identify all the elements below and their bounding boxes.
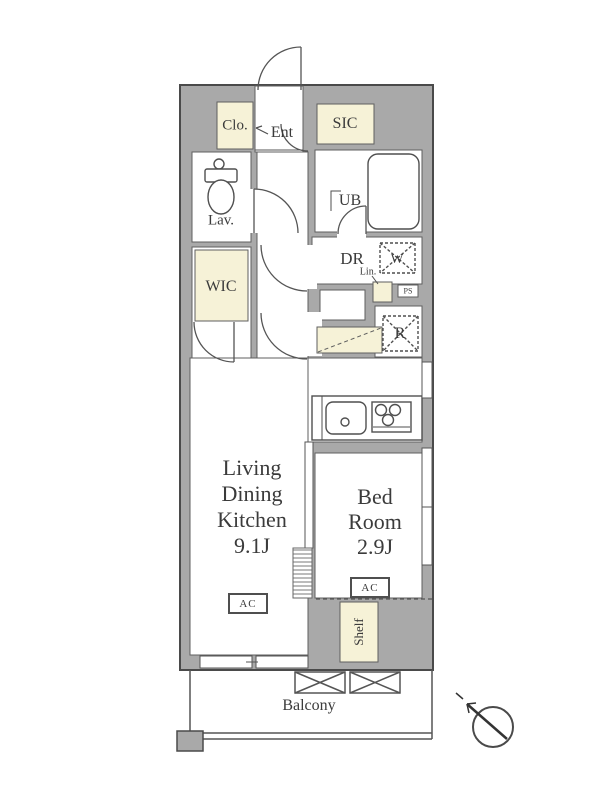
refrigerator-label: R: [395, 325, 406, 343]
pipe-space-label: PS: [404, 287, 413, 296]
bedroom-ac-badge: AC: [350, 577, 390, 598]
linen-box: [373, 282, 392, 302]
kitchen-counter: [312, 396, 422, 440]
closet-label: Clo.: [222, 118, 247, 135]
ldk-label-size: 9.1J: [217, 533, 287, 559]
ldk-balcony-window-left: [200, 656, 252, 668]
ldk-ac-badge: AC: [228, 593, 268, 614]
floorplan-page: Clo. Ent SIC Lav. UB DR Lin. W PS WIC R …: [0, 0, 600, 800]
unit-bath-label: UB: [339, 192, 361, 210]
bedroom-label-line1: Bed: [348, 484, 402, 509]
ldk-balcony-window-right: [256, 656, 308, 668]
thin-partition-wall: [305, 442, 313, 548]
balcony-label: Balcony: [282, 697, 335, 715]
accordion-door-hatch: [293, 548, 312, 598]
floorplan-drawing: [0, 0, 600, 800]
compass-north-icon: [456, 693, 513, 747]
lavatory-label: Lav.: [208, 213, 234, 230]
stove-icon: [372, 402, 411, 432]
bathtub-icon: [368, 154, 419, 229]
ldk-label: Living Dining Kitchen 9.1J: [217, 455, 287, 559]
shelf-label: Shelf: [351, 618, 367, 645]
balcony-equipment-box-left: [295, 672, 345, 693]
balcony-equipment-box-right: [350, 672, 400, 693]
bedroom-label-line2: Room: [348, 509, 402, 534]
kitchen-cupboard: [320, 290, 365, 320]
shoe-closet-label: SIC: [333, 115, 358, 133]
sink-icon: [326, 402, 366, 434]
ldk-label-line3: Kitchen: [217, 507, 287, 533]
balcony-wall-block: [177, 731, 203, 751]
entrance-hall-floor: [255, 86, 303, 152]
linen-label: Lin.: [360, 267, 376, 278]
entrance-door-arc: [258, 47, 301, 90]
washer-label: W: [391, 251, 403, 267]
ldk-label-line2: Dining: [217, 481, 287, 507]
ldk-ac-label: AC: [239, 598, 256, 610]
corridor-floor: [257, 152, 308, 360]
bath-doorway-gap: [337, 230, 366, 239]
kitchen-side-window: [422, 362, 432, 398]
ldk-label-line1: Living: [217, 455, 287, 481]
entrance-label: Ent: [271, 124, 293, 142]
bedroom-label: Bed Room 2.9J: [348, 484, 402, 559]
bedroom-ac-label: AC: [361, 582, 378, 594]
walk-in-closet-label: WIC: [205, 278, 236, 296]
dressing-room-doorway-gap: [306, 245, 317, 289]
bedroom-label-size: 2.9J: [348, 534, 402, 559]
